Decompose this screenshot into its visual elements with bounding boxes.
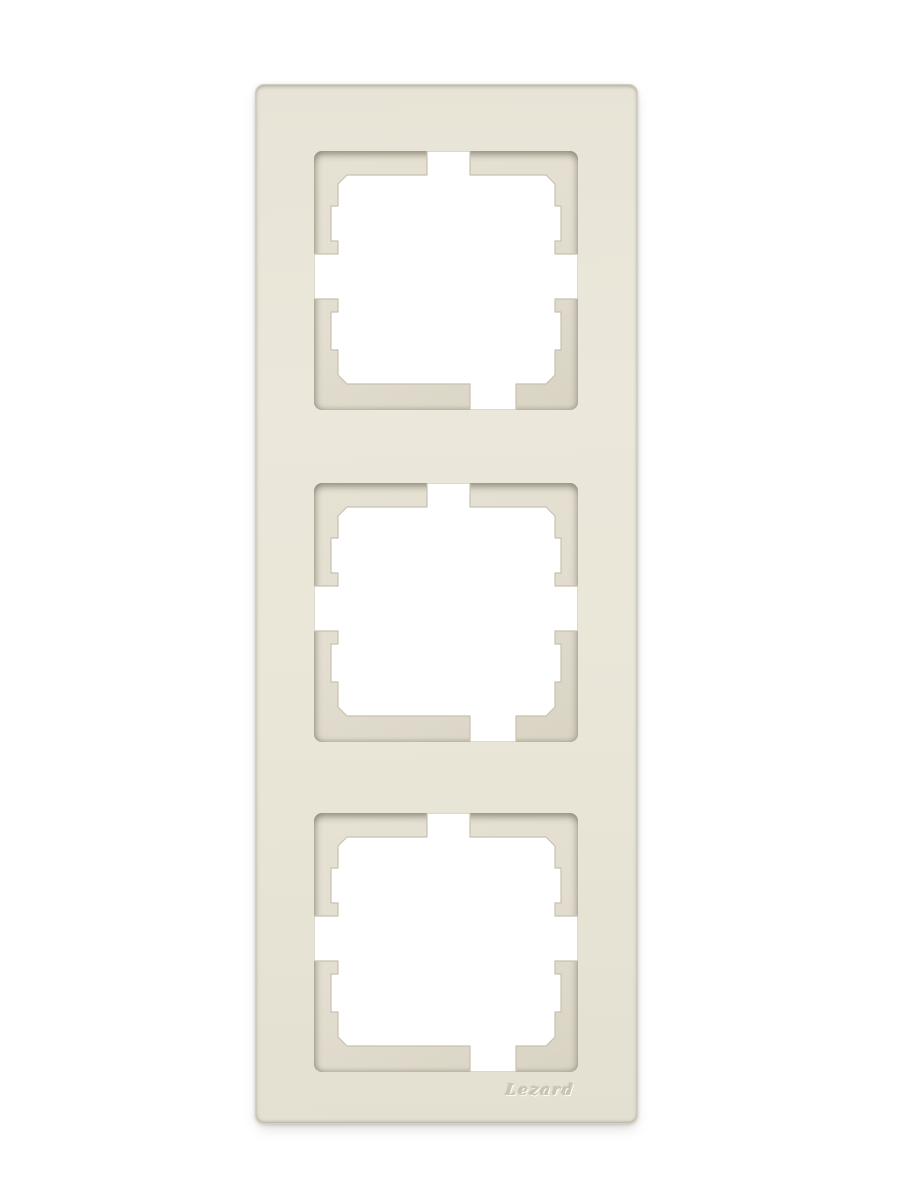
window-cutout-icon — [314, 151, 578, 410]
switch-frame-plate: Lezard — [255, 84, 638, 1124]
module-window-3 — [314, 813, 578, 1072]
window-cutout-icon — [314, 483, 578, 742]
module-window-2 — [314, 483, 578, 742]
product-photo: Lezard — [0, 0, 900, 1200]
module-window-1 — [314, 151, 578, 410]
brand-logo: Lezard — [505, 1081, 576, 1099]
window-cutout-icon — [314, 813, 578, 1072]
